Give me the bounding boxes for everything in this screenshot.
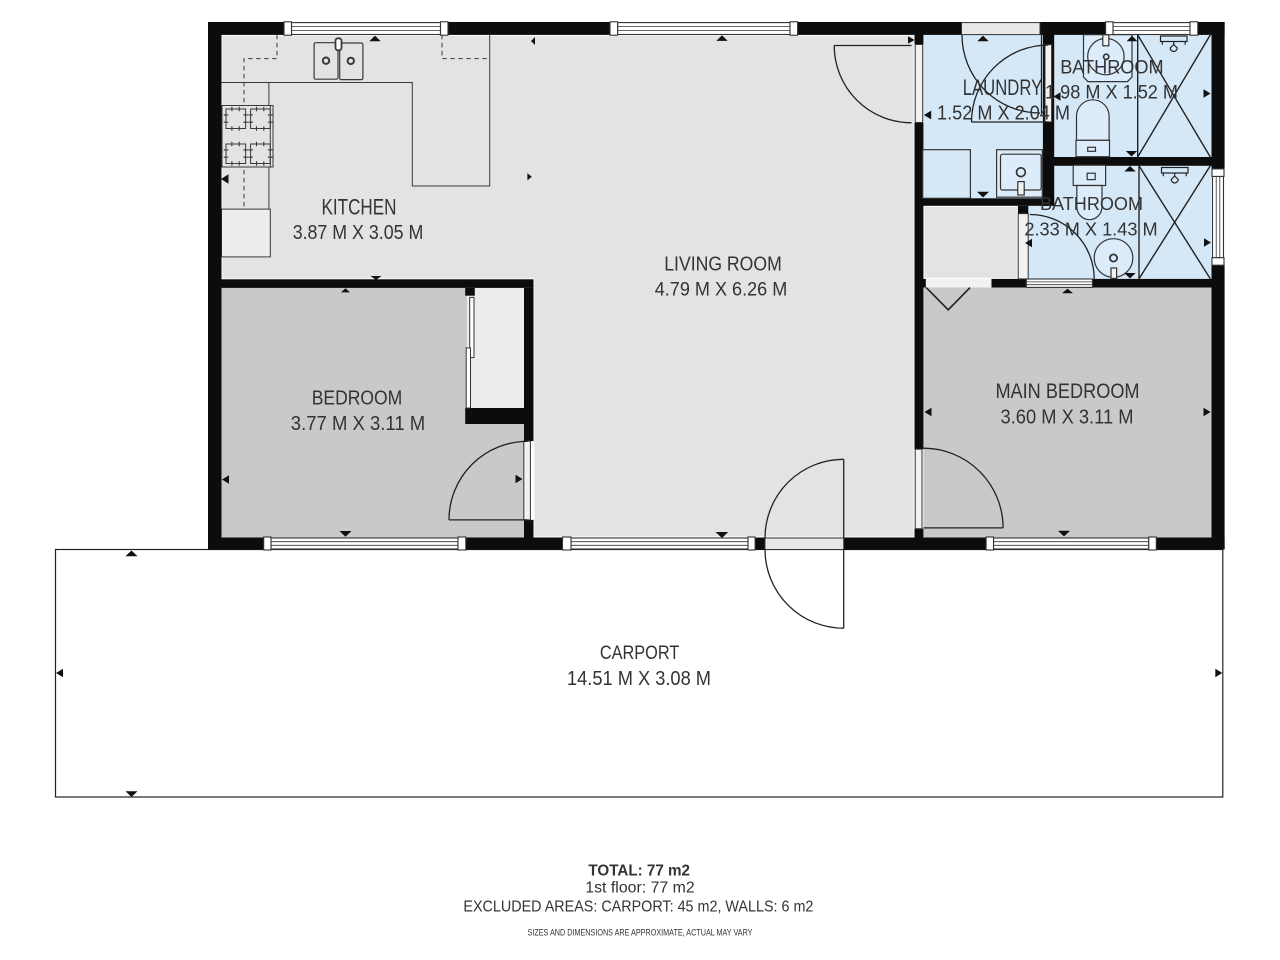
svg-text:CARPORT: CARPORT [600,642,680,664]
svg-text:SIZES AND DIMENSIONS ARE APPRO: SIZES AND DIMENSIONS ARE APPROXIMATE, AC… [528,928,753,938]
svg-text:BATHROOM: BATHROOM [1060,57,1163,78]
svg-text:BATHROOM: BATHROOM [1040,193,1143,214]
svg-text:BEDROOM: BEDROOM [312,388,403,410]
svg-text:3.77 M X 3.11 M: 3.77 M X 3.11 M [291,413,425,435]
svg-text:1.52 M X 2.04 M: 1.52 M X 2.04 M [937,102,1070,125]
svg-text:MAIN BEDROOM: MAIN BEDROOM [995,379,1139,403]
svg-text:1.98 M X 1.52 M: 1.98 M X 1.52 M [1045,83,1178,104]
svg-text:2.33 M X 1.43 M: 2.33 M X 1.43 M [1024,219,1157,240]
svg-text:3.87 M X 3.05 M: 3.87 M X 3.05 M [293,222,424,244]
svg-text:LAUNDRY: LAUNDRY [963,75,1043,100]
svg-text:LIVING ROOM: LIVING ROOM [664,254,782,276]
svg-text:14.51 M X 3.08 M: 14.51 M X 3.08 M [567,668,711,690]
svg-text:KITCHEN: KITCHEN [322,194,397,219]
svg-text:3.60 M X 3.11 M: 3.60 M X 3.11 M [1001,407,1134,429]
svg-text:4.79 M X 6.26 M: 4.79 M X 6.26 M [655,279,788,301]
svg-text:EXCLUDED AREAS: CARPORT: 45 m2: EXCLUDED AREAS: CARPORT: 45 m2, WALLS: 6… [463,898,813,915]
svg-text:1st floor: 77 m2: 1st floor: 77 m2 [585,880,694,897]
svg-text:TOTAL: 77 m2: TOTAL: 77 m2 [588,862,690,879]
